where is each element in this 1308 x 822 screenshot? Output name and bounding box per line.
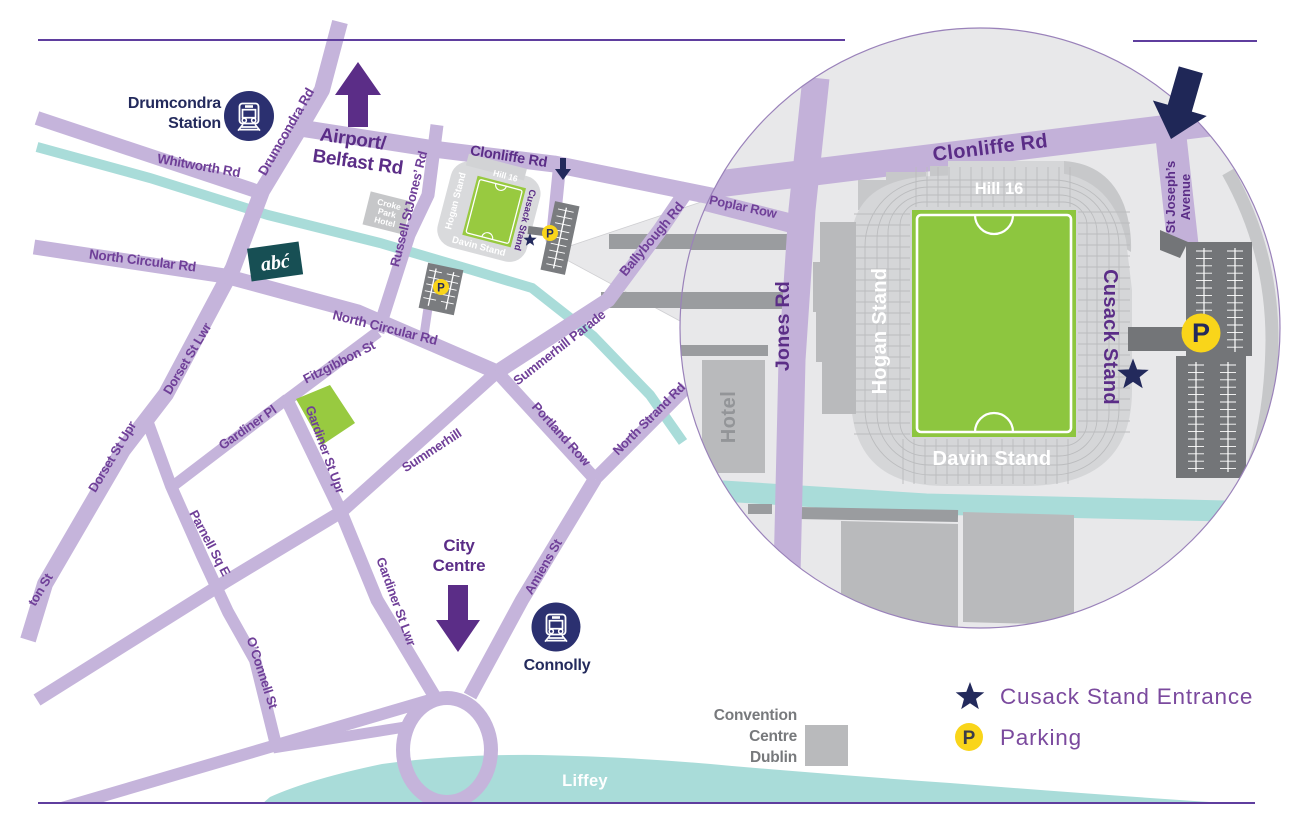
svg-text:Centre: Centre <box>749 728 797 745</box>
svg-text:abć: abć <box>259 250 292 276</box>
svg-text:Avenue: Avenue <box>1178 174 1193 220</box>
svg-text:Hogan Stand: Hogan Stand <box>869 268 891 395</box>
svg-text:Hill 16: Hill 16 <box>975 180 1024 198</box>
svg-text:Jones Rd: Jones Rd <box>772 281 794 371</box>
svg-text:Hotel: Hotel <box>718 391 740 444</box>
svg-text:Cusack Stand: Cusack Stand <box>1099 269 1121 405</box>
svg-text:Connolly: Connolly <box>524 657 591 674</box>
svg-text:Cusack Stand Entrance: Cusack Stand Entrance <box>1000 684 1253 709</box>
svg-text:Dublin: Dublin <box>750 749 797 766</box>
svg-text:Centre: Centre <box>433 556 486 575</box>
svg-text:St Joseph’s: St Joseph’s <box>1163 161 1178 233</box>
svg-text:P: P <box>546 229 554 241</box>
svg-text:P: P <box>963 728 976 749</box>
svg-text:Drumcondra: Drumcondra <box>128 95 221 112</box>
svg-text:Station: Station <box>168 115 221 132</box>
svg-text:Parking: Parking <box>1000 725 1082 750</box>
svg-text:P: P <box>1192 318 1210 348</box>
svg-text:Davin Stand: Davin Stand <box>933 448 1052 470</box>
svg-text:Convention: Convention <box>714 707 797 724</box>
svg-text:P: P <box>437 283 445 295</box>
svg-text:City: City <box>443 536 475 555</box>
svg-text:Liffey: Liffey <box>562 772 608 790</box>
